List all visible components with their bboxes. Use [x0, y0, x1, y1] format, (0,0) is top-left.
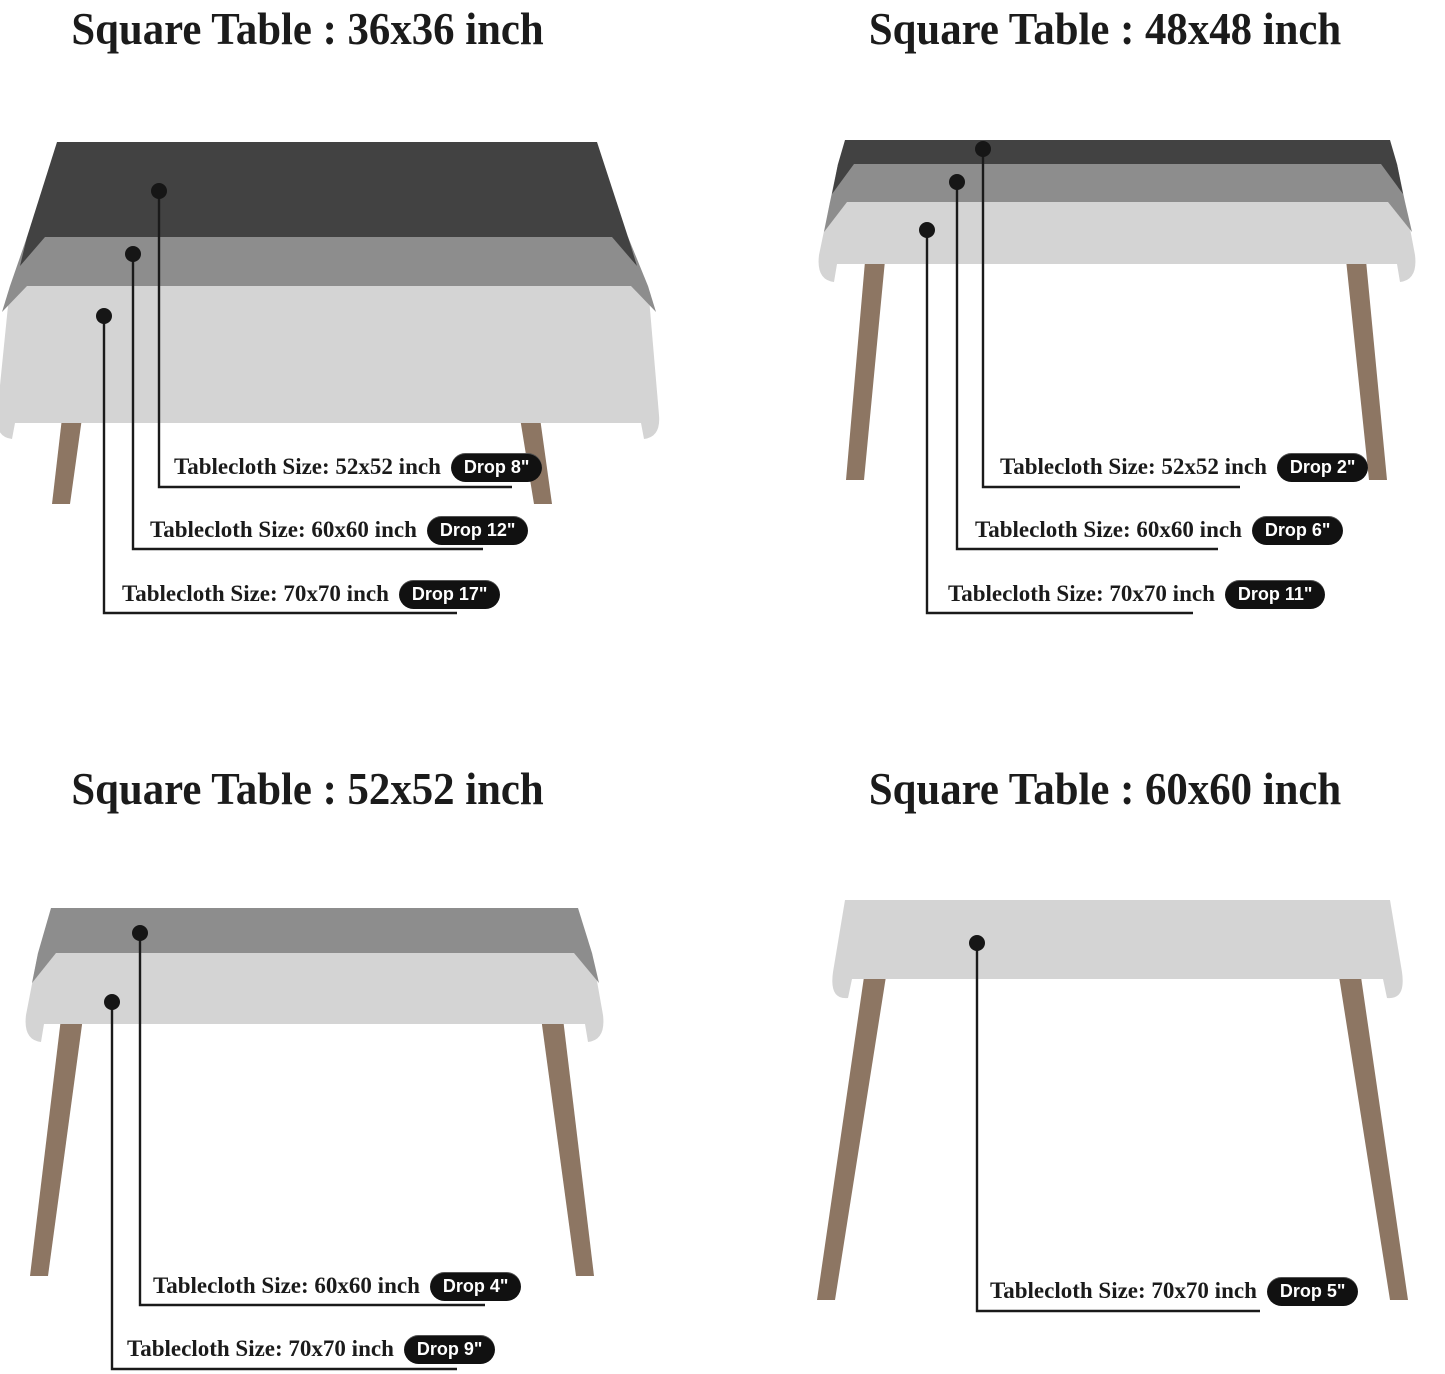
tablecloth-layer-70x70 [832, 900, 1402, 998]
marker-dot-60x60 [949, 174, 965, 190]
size-label-text: Tablecloth Size: 70x70 inch [122, 581, 389, 607]
table-leg-right [1338, 970, 1408, 1300]
size-label-text: Tablecloth Size: 70x70 inch [990, 1278, 1257, 1304]
marker-dot-70x70 [96, 308, 112, 324]
drop-badge: Drop 4" [430, 1272, 522, 1301]
drop-badge: Drop 5" [1267, 1277, 1359, 1306]
leader-line-70x70 [977, 943, 1260, 1311]
table-leg-left [817, 970, 887, 1300]
section-title-60x60: Square Table : 60x60 inch [807, 762, 1402, 815]
tablecloth-layer-70x70 [819, 202, 1416, 282]
size-label-row: Tablecloth Size: 60x60 inch Drop 4" [153, 1271, 521, 1301]
marker-dot-60x60 [132, 925, 148, 941]
section-title-52x52: Square Table : 52x52 inch [22, 762, 594, 815]
size-label-row: Tablecloth Size: 70x70 inch Drop 17" [122, 579, 500, 609]
drop-badge: Drop 8" [451, 453, 543, 482]
marker-dot-70x70 [919, 222, 935, 238]
tablecloth-layer-52x52 [838, 140, 1397, 164]
table-leg-left [846, 250, 886, 480]
tablecloth-layer-70x70 [0, 286, 659, 439]
size-label-row: Tablecloth Size: 60x60 inch Drop 6" [975, 515, 1343, 545]
table-leg-left [52, 418, 82, 504]
drop-badge: Drop 2" [1277, 453, 1369, 482]
marker-dot-52x52 [151, 183, 167, 199]
tablecloth-layer-60x60 [38, 908, 592, 953]
size-label-text: Tablecloth Size: 70x70 inch [948, 581, 1215, 607]
section-title-36x36: Square Table : 36x36 inch [22, 2, 594, 55]
leader-line-70x70 [927, 230, 1193, 613]
size-label-text: Tablecloth Size: 60x60 inch [975, 517, 1242, 543]
size-label-row: Tablecloth Size: 70x70 inch Drop 9" [127, 1334, 495, 1364]
size-label-text: Tablecloth Size: 60x60 inch [150, 517, 417, 543]
size-label-row: Tablecloth Size: 52x52 inch Drop 8" [174, 452, 542, 482]
tablecloth-size-guide: Square Table : 36x36 inch Tablecloth Siz… [0, 0, 1445, 1374]
table-leg-right [1345, 250, 1387, 480]
drop-badge: Drop 6" [1252, 516, 1344, 545]
marker-dot-52x52 [975, 141, 991, 157]
size-label-text: Tablecloth Size: 52x52 inch [174, 454, 441, 480]
drop-badge: Drop 17" [399, 580, 501, 609]
tablecloth-layer-60x60 [10, 237, 648, 286]
size-label-row: Tablecloth Size: 52x52 inch Drop 2" [1000, 452, 1368, 482]
table-leg-left [30, 1010, 84, 1276]
marker-dot-70x70 [969, 935, 985, 951]
marker-dot-60x60 [125, 246, 141, 262]
table-leg-right [540, 1010, 594, 1276]
marker-dot-70x70 [104, 994, 120, 1010]
size-label-row: Tablecloth Size: 60x60 inch Drop 12" [150, 515, 528, 545]
drop-badge: Drop 12" [427, 516, 529, 545]
drop-badge: Drop 9" [404, 1335, 496, 1364]
tablecloth-layer-52x52 [27, 142, 628, 237]
size-label-row: Tablecloth Size: 70x70 inch Drop 5" [990, 1276, 1358, 1306]
table-illustration-48x48 [780, 130, 1445, 650]
size-label-text: Tablecloth Size: 70x70 inch [127, 1336, 394, 1362]
tablecloth-layer-60x60 [830, 164, 1405, 202]
size-label-text: Tablecloth Size: 60x60 inch [153, 1273, 420, 1299]
drop-badge: Drop 11" [1225, 580, 1326, 609]
size-label-row: Tablecloth Size: 70x70 inch Drop 11" [948, 579, 1325, 609]
leader-line-70x70 [112, 1002, 457, 1369]
table-illustration-36x36 [0, 130, 720, 650]
section-title-48x48: Square Table : 48x48 inch [807, 2, 1402, 55]
size-label-text: Tablecloth Size: 52x52 inch [1000, 454, 1267, 480]
